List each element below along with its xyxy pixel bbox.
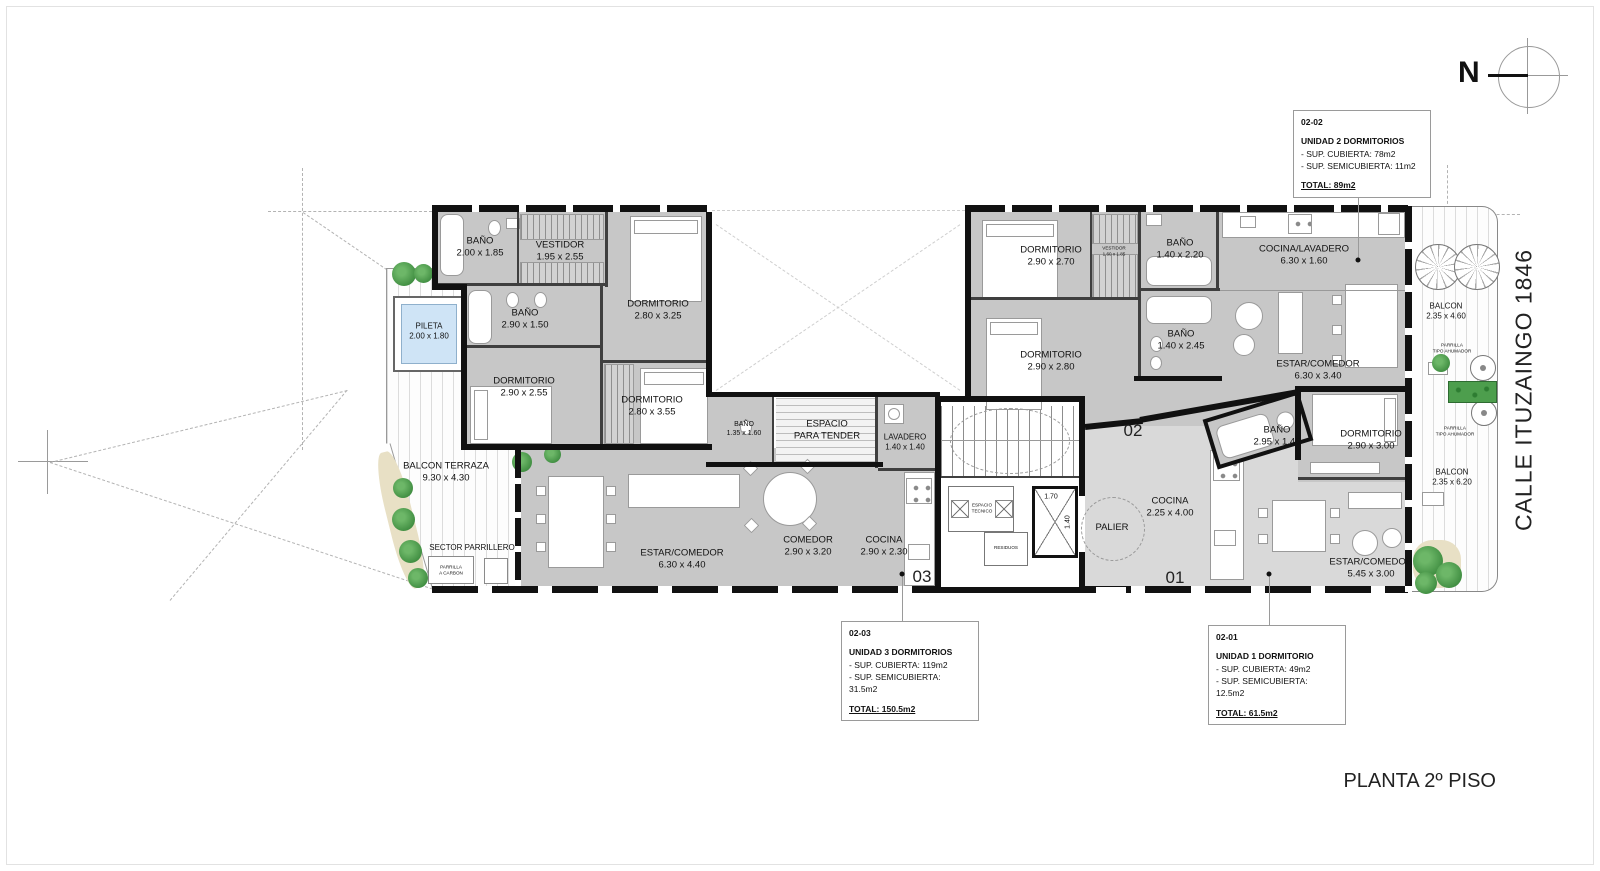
wall-window-bottom <box>432 586 938 593</box>
washer-drum <box>888 408 900 420</box>
unit-covered: - SUP. CUBIERTA: 119m2 <box>849 659 971 671</box>
courtyard-line <box>712 210 965 211</box>
wardrobe <box>520 262 604 284</box>
unit-covered: - SUP. CUBIERTA: 78m2 <box>1301 148 1423 160</box>
stairs-path <box>950 408 1070 474</box>
sofa <box>628 474 740 508</box>
unit-marker-01: 01 <box>1166 568 1185 588</box>
unit-code: 02-03 <box>849 627 971 639</box>
wall-segment <box>706 392 940 397</box>
wall-segment <box>1134 376 1222 381</box>
pillow <box>474 390 488 440</box>
unit-name: UNIDAD 1 DORMITORIO <box>1216 650 1338 662</box>
leader-dot <box>1267 572 1272 577</box>
tree <box>1454 244 1500 290</box>
compass-circle <box>1498 46 1560 108</box>
plant <box>392 262 416 286</box>
partition <box>603 360 708 363</box>
wall-segment <box>432 205 438 290</box>
dining-table <box>1345 284 1398 368</box>
wall-segment <box>878 468 940 471</box>
grill-counter <box>484 558 508 584</box>
room-label-dormitorio: DORMITORIO2.90 x 3.00 <box>1340 429 1402 454</box>
bidet <box>1150 356 1162 370</box>
pillow <box>634 220 698 234</box>
unit-total: TOTAL: 89m2 <box>1301 179 1423 191</box>
wall-window-east <box>1405 206 1412 592</box>
room-label-cocina: COCINA2.25 x 4.00 <box>1146 496 1193 521</box>
dresser <box>1310 462 1380 474</box>
pillow <box>986 224 1054 237</box>
wardrobe <box>520 214 604 240</box>
chair <box>1258 508 1268 518</box>
sink <box>1146 214 1162 226</box>
north-arrow-icon <box>1488 74 1528 77</box>
stove <box>906 478 932 504</box>
wall-segment <box>935 396 941 592</box>
room-label-bano: BAÑO1.40 x 2.45 <box>1157 329 1204 354</box>
room-label-pileta: PILETA2.00 x 1.80 <box>409 322 449 343</box>
chair <box>1332 295 1342 305</box>
wall-window-bottom <box>1085 586 1408 593</box>
property-line <box>268 211 432 212</box>
partition <box>466 345 600 348</box>
wall-segment <box>935 396 1085 402</box>
unit-info-box-02-03: 02-03 UNIDAD 3 DORMITORIOS - SUP. CUBIER… <box>841 621 979 721</box>
room-label-bano: BAÑO2.90 x 1.50 <box>501 308 548 333</box>
leader-line <box>1269 575 1270 625</box>
bathtub <box>1146 296 1212 324</box>
counter-line <box>1218 290 1405 291</box>
wardrobe <box>1092 214 1138 244</box>
partition <box>875 396 878 468</box>
room-label-dormitorio: DORMITORIO2.80 x 3.25 <box>627 299 689 324</box>
sink <box>1214 530 1236 546</box>
sink <box>1240 216 1256 228</box>
chair <box>536 486 546 496</box>
wall-segment <box>1079 396 1085 496</box>
north-label: N <box>1458 56 1480 90</box>
chair <box>1258 534 1268 544</box>
room-label-dormitorio: DORMITORIO2.90 x 2.70 <box>1020 245 1082 270</box>
wall-segment <box>965 205 971 396</box>
pillow <box>644 372 704 385</box>
plant <box>1432 354 1450 372</box>
elevator-depth-dim: 1.40 <box>1063 515 1072 529</box>
wall-window-top <box>432 205 712 212</box>
unit-name: UNIDAD 2 DORMITORIOS <box>1301 135 1423 147</box>
room-label-espacio-tecnico: ESPACIOTECNICO <box>972 502 993 513</box>
ac-unit <box>1422 492 1444 506</box>
wardrobe <box>1092 254 1138 298</box>
hedge <box>1448 381 1497 403</box>
room-label-parrilla-ahumador: PARRILLATIPO AHUMADOR <box>1436 425 1475 436</box>
room-label-estar: ESTAR/COMEDOR5.45 x 3.00 <box>1329 557 1412 582</box>
partition <box>1216 212 1219 290</box>
unit-code: 02-01 <box>1216 631 1338 643</box>
room-label-balcon: BALCON2.35 x 4.60 <box>1426 302 1466 323</box>
grill-center <box>1480 365 1486 371</box>
partition <box>1298 477 1405 480</box>
room-label-parrilla-carbon: PARRILLAA CARBON <box>439 564 463 575</box>
street-name: CALLE ITUZAINGO 1846 <box>1511 249 1538 531</box>
page-title: PLANTA 2º PISO <box>1330 770 1496 793</box>
room-label-bano: BAÑO2.95 x 1.45 <box>1253 425 1300 450</box>
unit-semi: - SUP. SEMICUBIERTA: 12.5m2 <box>1216 675 1338 700</box>
sink <box>908 544 930 560</box>
chair <box>1330 508 1340 518</box>
partition <box>600 286 603 448</box>
fridge <box>1378 213 1400 235</box>
room-label-parrilla-ahumador: PARRILLATIPO AHUMADOR <box>1433 342 1472 353</box>
partition <box>517 212 519 284</box>
unit-info-box-02-02: 02-02 UNIDAD 2 DORMITORIOS - SUP. CUBIER… <box>1293 110 1431 198</box>
pillow <box>990 322 1038 335</box>
unit-code: 02-02 <box>1301 116 1423 128</box>
unit-semi: - SUP. SEMICUBIERTA: 31.5m2 <box>849 671 971 696</box>
armchair <box>1382 528 1402 548</box>
dining-table <box>1272 500 1326 552</box>
room-label-tender: ESPACIOPARA TENDER <box>794 419 860 444</box>
property-line <box>302 168 303 450</box>
partition <box>941 476 1079 478</box>
room-label-balcon: BALCON2.35 x 6.20 <box>1432 468 1472 489</box>
room-label-bano: BAÑO1.40 x 2.20 <box>1156 238 1203 263</box>
room-label-balcon-terraza: BALCON TERRAZA9.30 x 4.30 <box>403 461 489 486</box>
wall-segment <box>706 462 883 467</box>
wall-segment <box>461 284 467 450</box>
chair <box>606 486 616 496</box>
grill-center <box>1481 410 1487 416</box>
plant <box>408 568 428 588</box>
partition <box>1138 288 1220 291</box>
plant <box>414 264 433 283</box>
unit-covered: - SUP. CUBIERTA: 49m2 <box>1216 663 1338 675</box>
room-label-dormitorio: DORMITORIO2.90 x 2.55 <box>493 376 555 401</box>
chair <box>536 542 546 552</box>
room-label-bano: BAÑO2.00 x 1.85 <box>456 236 503 261</box>
leader-line <box>902 575 903 623</box>
armchair <box>1235 302 1263 330</box>
bidet <box>534 292 547 308</box>
room-label-vestidor: VESTIDOR1.95 x 2.55 <box>536 240 585 265</box>
room-label-cocina: COCINA2.90 x 2.30 <box>860 535 907 560</box>
elevator-width-dim: 1.70 <box>1044 492 1058 501</box>
room-label-estar: ESTAR/COMEDOR6.30 x 3.40 <box>1276 359 1359 384</box>
leader-dot <box>900 572 905 577</box>
unit-semi: - SUP. SEMICUBIERTA: 11m2 <box>1301 160 1423 172</box>
toilet <box>488 220 501 236</box>
room-label-dormitorio: DORMITORIO2.90 x 2.80 <box>1020 350 1082 375</box>
unit-info-box-02-01: 02-01 UNIDAD 1 DORMITORIO - SUP. CUBIERT… <box>1208 625 1346 725</box>
wall-segment <box>706 205 712 396</box>
wall-window-top <box>965 205 1408 212</box>
sofa <box>1278 292 1303 354</box>
partition <box>605 212 608 287</box>
plant <box>392 508 415 531</box>
chair <box>1330 534 1340 544</box>
partition <box>1090 212 1092 300</box>
unit-total: TOTAL: 61.5m2 <box>1216 707 1338 719</box>
room-label-bano: BAÑO1.35 x 1.60 <box>727 420 762 438</box>
chair <box>1332 325 1342 335</box>
bathtub <box>468 290 492 344</box>
armchair <box>1233 334 1255 356</box>
partition <box>1138 212 1141 380</box>
room-label-palier: PALIER <box>1095 522 1128 534</box>
wall-segment <box>938 587 1085 593</box>
duct <box>951 500 969 518</box>
leader-dot <box>1356 258 1361 263</box>
room-label-cocina-lavadero: COCINA/LAVADERO6.30 x 1.60 <box>1259 244 1349 269</box>
room-label-dormitorio: DORMITORIO2.80 x 3.55 <box>621 395 683 420</box>
wall-segment <box>461 444 712 450</box>
property-cross <box>47 430 48 494</box>
entry-gap <box>1096 587 1126 593</box>
sofa <box>1348 492 1402 509</box>
unit-marker-02: 02 <box>1124 421 1143 441</box>
stove <box>1288 214 1312 234</box>
glass-wall <box>515 450 521 586</box>
floor-plan-sheet: BAÑO2.00 x 1.85 VESTIDOR1.95 x 2.55 DORM… <box>0 0 1600 871</box>
unit-total: TOTAL: 150.5m2 <box>849 703 971 715</box>
plant <box>1436 562 1462 588</box>
partition <box>971 297 1140 300</box>
room-label-comedor: COMEDOR2.90 x 3.20 <box>783 535 833 560</box>
unit-marker-03: 03 <box>913 567 932 587</box>
toilet <box>506 292 519 308</box>
plant <box>399 540 422 563</box>
room-label-vestidor: VESTIDOR1.60 x 1.85 <box>1102 245 1125 256</box>
wall-segment <box>1295 386 1408 392</box>
partition <box>772 396 774 464</box>
chair <box>606 542 616 552</box>
room-label-estar: ESTAR/COMEDOR6.30 x 4.40 <box>640 548 723 573</box>
duct <box>995 500 1013 518</box>
unit-name: UNIDAD 3 DORMITORIOS <box>849 646 971 658</box>
room-label-sector-parrillero: SECTOR PARRILLERO <box>429 543 515 553</box>
dining-table <box>548 476 604 568</box>
chair <box>536 514 546 524</box>
plant <box>1415 572 1437 594</box>
room-label-residuos: RESIDUOS <box>994 545 1018 551</box>
chair <box>606 514 616 524</box>
room-label-lavadero: LAVADERO1.40 x 1.40 <box>884 433 926 454</box>
armchair <box>1352 530 1378 556</box>
